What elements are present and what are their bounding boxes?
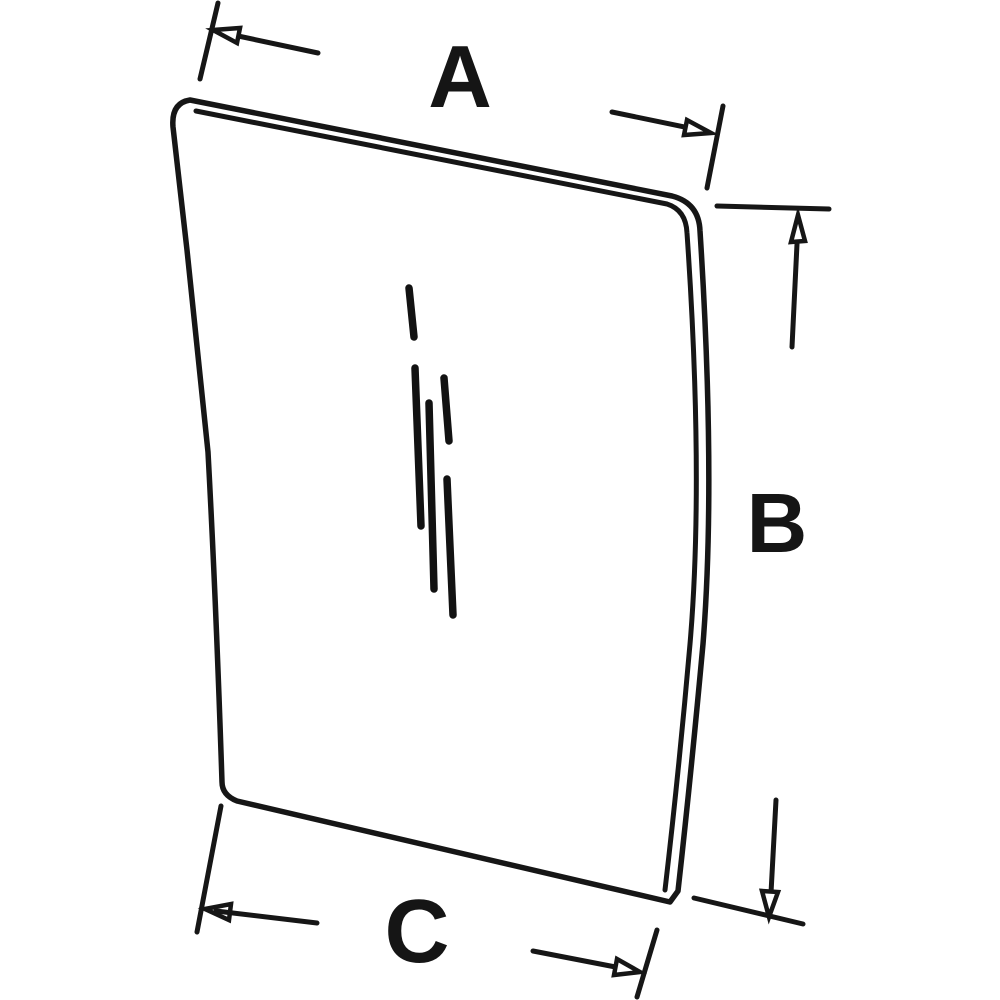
dimension-a-label: A xyxy=(428,27,492,126)
panel xyxy=(173,100,709,902)
reflection-mark-4 xyxy=(444,378,449,441)
dim-c-extension-right xyxy=(637,930,657,997)
dim-b-shaft-bottom xyxy=(771,800,776,893)
dim-a-arrowhead-right xyxy=(684,120,711,135)
dim-a-arrowhead-left xyxy=(213,28,240,43)
dim-c-arrowhead-right xyxy=(614,959,640,975)
dimension-b-label: B xyxy=(747,476,808,570)
reflection-mark-3 xyxy=(429,403,434,589)
glass-panel-diagram: A B C xyxy=(0,0,1000,1000)
dim-b-arrowhead-up xyxy=(791,215,805,242)
dim-b-shaft-top xyxy=(792,244,797,347)
reflection-mark-1 xyxy=(409,288,414,337)
dimension-c-label: C xyxy=(385,882,450,982)
dim-b-extension-bottom xyxy=(694,898,803,924)
dimension-b: B xyxy=(694,206,829,924)
diagram-canvas: A B C xyxy=(0,0,1000,1000)
panel-outer-outline xyxy=(173,100,709,902)
dim-b-extension-top xyxy=(717,206,829,209)
dim-a-extension-left xyxy=(200,3,218,79)
dim-a-extension-right xyxy=(707,106,723,188)
